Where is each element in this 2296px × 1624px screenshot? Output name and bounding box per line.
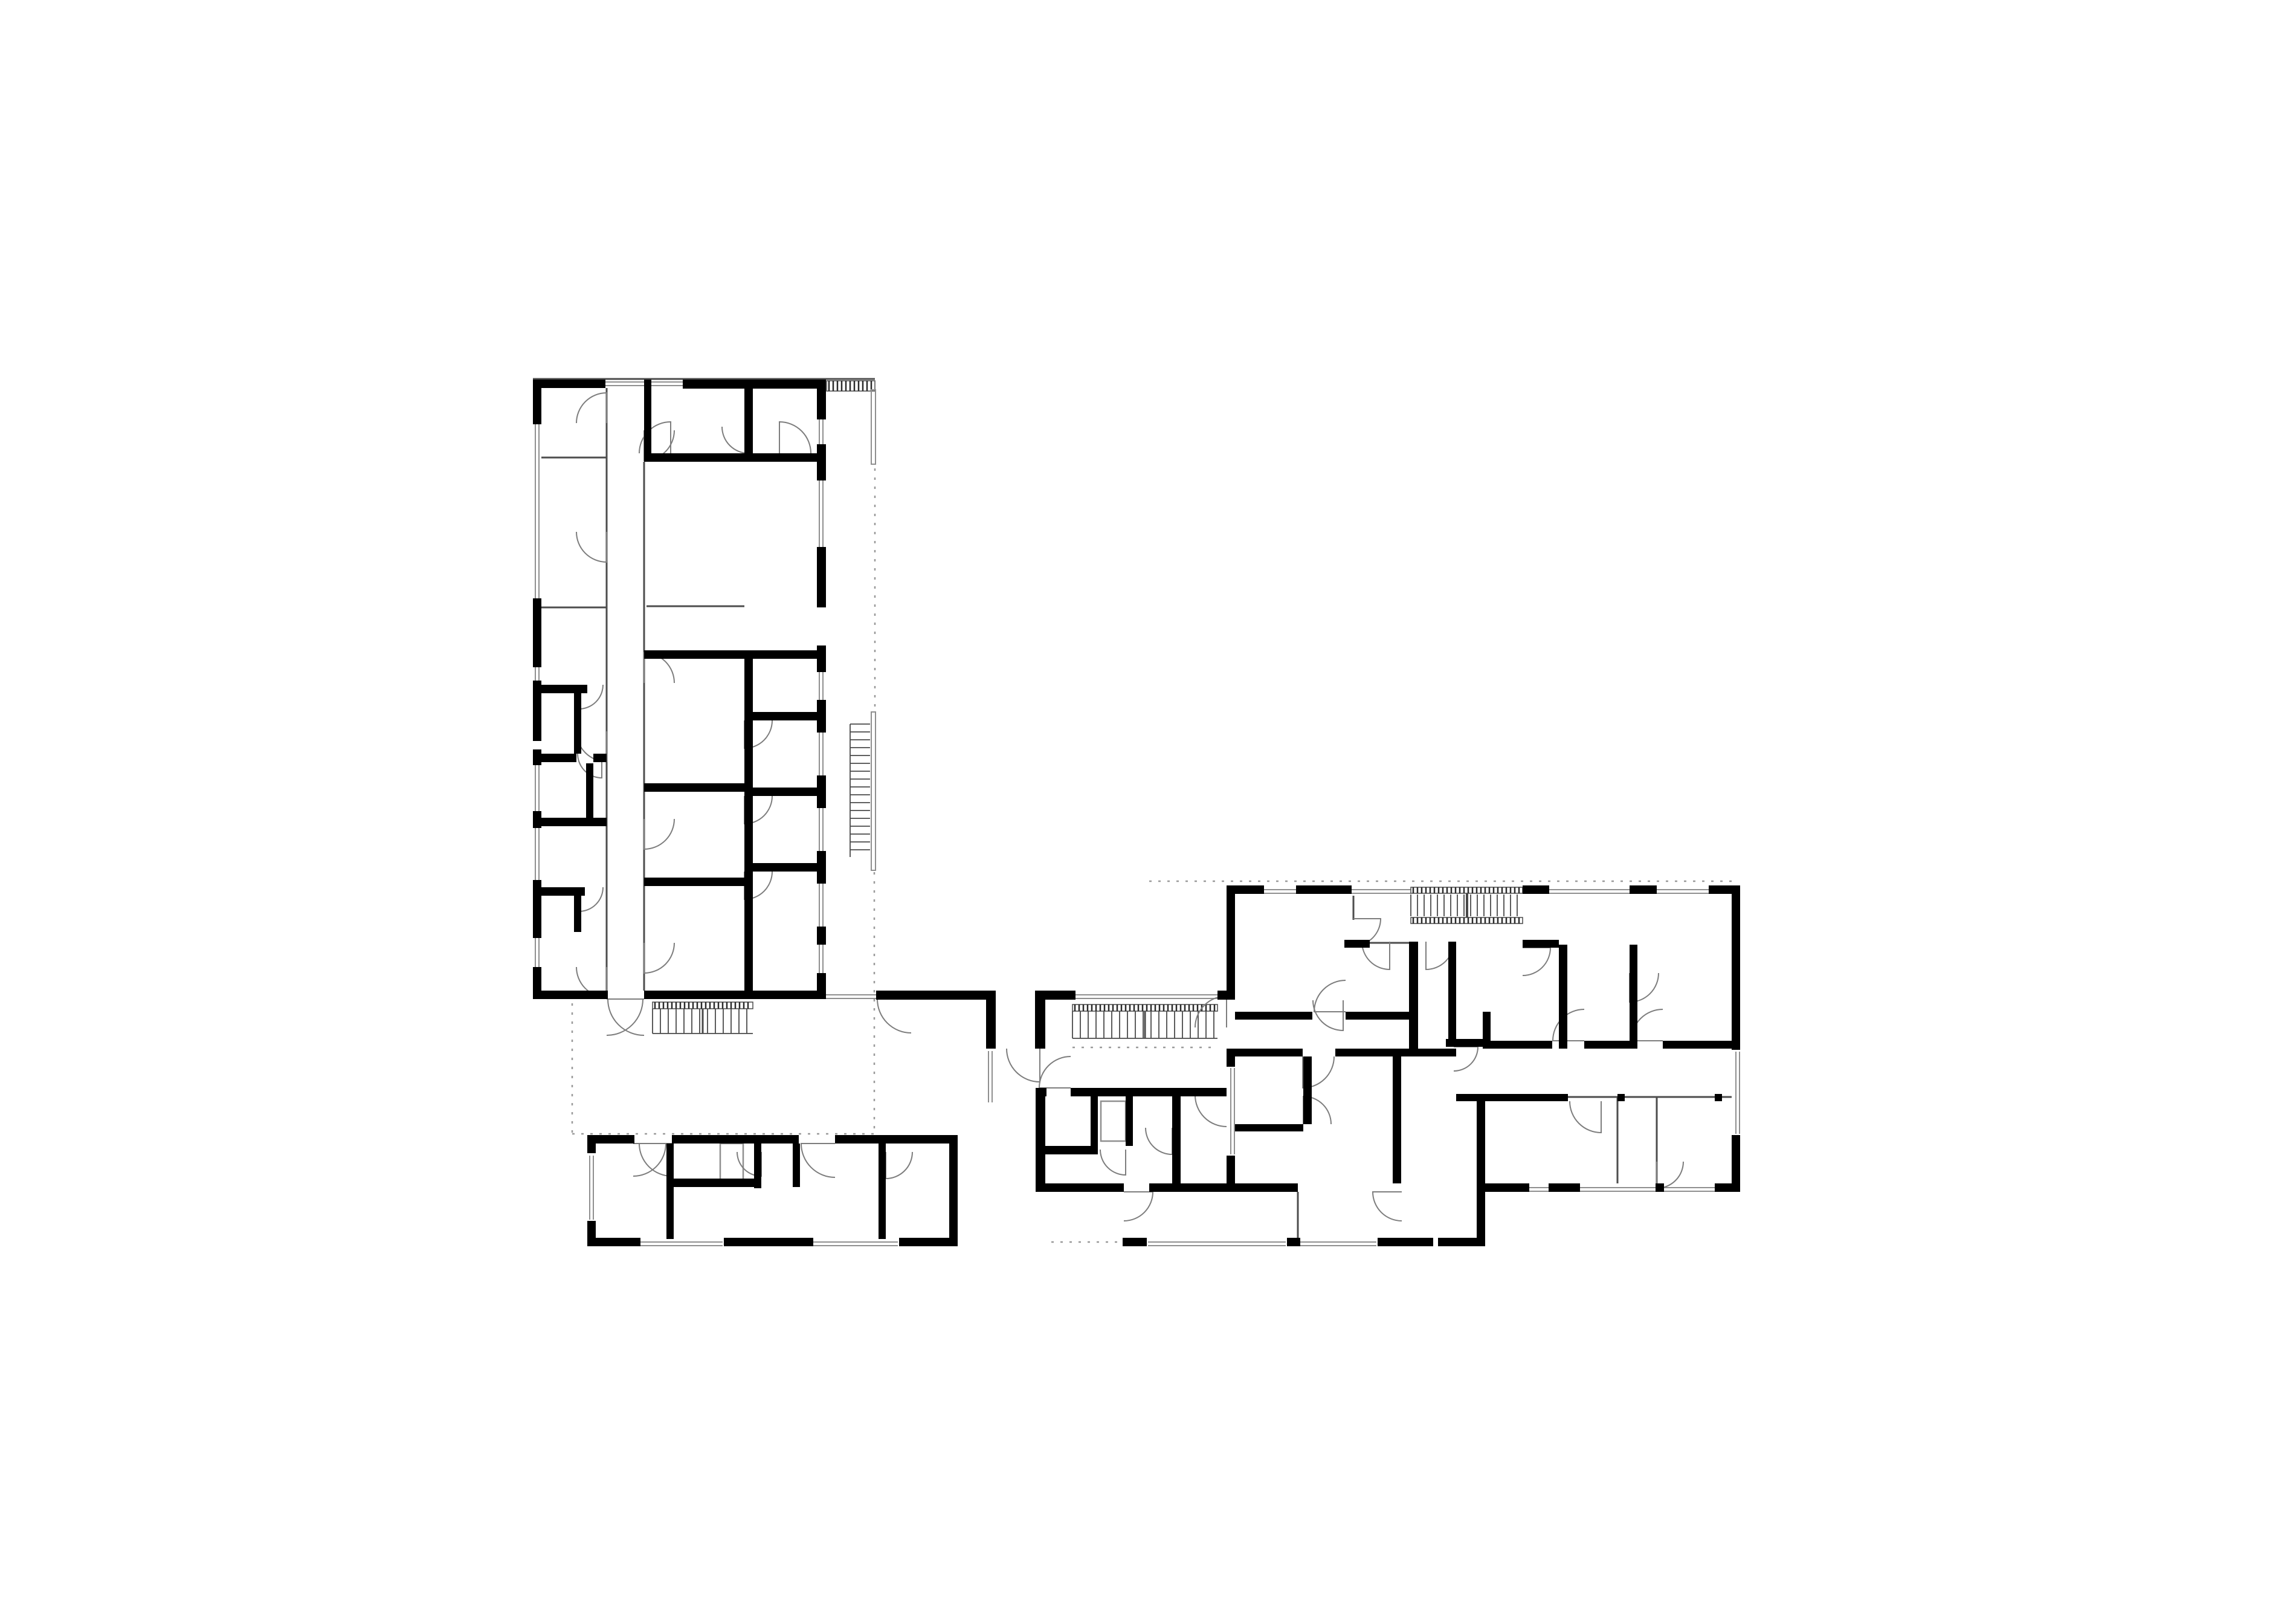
- wall-segment: [1523, 940, 1559, 948]
- wall-segment: [876, 991, 911, 1000]
- door-swing: [779, 422, 811, 453]
- wall-segment: [1523, 885, 1549, 894]
- wall-segment: [1732, 885, 1740, 1050]
- wall-segment: [1584, 1041, 1631, 1049]
- wall-segment: [593, 754, 607, 762]
- door-swing: [801, 1144, 835, 1177]
- door-swing: [886, 1152, 912, 1179]
- door-swing: [1100, 1150, 1126, 1175]
- wall-segment: [817, 645, 826, 672]
- wall-segment: [541, 754, 576, 762]
- elevators-layer: [720, 390, 1126, 1183]
- wall-segment: [753, 788, 817, 796]
- wall-segment: [1393, 1056, 1401, 1183]
- door-swing: [1553, 1009, 1584, 1041]
- wall-segment: [744, 388, 753, 453]
- thick-walls-layer: [533, 380, 1740, 1246]
- wall-segment: [744, 659, 753, 991]
- wall-segment: [1549, 1183, 1580, 1192]
- wall-segment: [574, 693, 581, 754]
- canopy-post: [871, 712, 876, 870]
- wall-segment: [1227, 885, 1235, 992]
- wall-segment: [644, 878, 744, 886]
- wall-segment: [644, 991, 825, 999]
- wall-segment: [724, 1238, 813, 1246]
- wall-segment: [753, 863, 817, 872]
- wall-segment: [1446, 1039, 1491, 1047]
- floor-plan-page: [0, 0, 2296, 1624]
- wall-segment: [644, 650, 817, 659]
- wall-segment: [644, 783, 744, 792]
- wall-segment: [911, 991, 995, 1000]
- wall-segment: [541, 685, 587, 693]
- wall-segment: [541, 887, 585, 896]
- wall-segment: [835, 1135, 949, 1144]
- wall-segment: [753, 712, 817, 720]
- wall-segment: [1732, 1135, 1740, 1192]
- wall-segment: [533, 880, 541, 938]
- door-swing: [1195, 1095, 1227, 1127]
- wall-segment: [949, 1135, 958, 1246]
- wall-segment: [793, 1144, 800, 1187]
- wall-segment: [1715, 1183, 1740, 1192]
- wall-segment: [644, 453, 817, 462]
- wall-segment: [1559, 945, 1567, 1049]
- door-swing: [644, 819, 674, 849]
- wall-segment: [666, 1144, 674, 1239]
- wall-segment: [1227, 1183, 1298, 1192]
- wall-segment: [1035, 991, 1075, 1000]
- wall-segment: [1344, 940, 1370, 948]
- wall-segment: [817, 851, 826, 884]
- stair-rail-band: [1072, 1004, 1217, 1011]
- door-swing: [1314, 980, 1346, 1012]
- door-swing: [1454, 1047, 1478, 1071]
- door-swing: [576, 532, 607, 562]
- wall-segment: [1036, 1183, 1124, 1192]
- wall-segment: [1149, 1183, 1235, 1192]
- wall-segment: [1235, 1012, 1312, 1020]
- wall-segment: [1409, 942, 1418, 1049]
- wall-segment: [586, 763, 593, 818]
- wall-segment: [817, 380, 826, 419]
- door-swing: [644, 943, 674, 973]
- wall-segment: [533, 598, 541, 667]
- wall-segment: [1235, 1049, 1303, 1056]
- wall-segment: [1663, 1041, 1732, 1049]
- wall-segment: [533, 380, 605, 388]
- wall-segment: [533, 380, 541, 424]
- wall-segment: [533, 991, 608, 999]
- wall-segment: [899, 1238, 958, 1246]
- wall-segment: [533, 811, 541, 828]
- wall-segment: [1346, 1012, 1409, 1020]
- wall-segment: [1617, 1094, 1625, 1101]
- canopy-post: [871, 390, 876, 464]
- door-swing: [1007, 1049, 1040, 1082]
- wall-segment: [817, 700, 826, 733]
- wall-segment: [986, 991, 996, 1049]
- wall-segment: [1217, 991, 1235, 1000]
- wall-segment: [817, 775, 826, 808]
- stairs-layer: [653, 381, 1523, 1038]
- floor-plan-canvas: [0, 0, 2296, 1624]
- wall-segment: [817, 927, 826, 945]
- wall-segment: [879, 1144, 886, 1239]
- wall-segment: [1630, 885, 1657, 894]
- wall-segment: [1378, 1238, 1433, 1246]
- wall-segment: [1485, 1183, 1529, 1192]
- door-swing: [1523, 948, 1550, 975]
- wall-segment: [1448, 942, 1456, 1047]
- wall-segment: [574, 896, 581, 932]
- wall-segment: [1036, 1146, 1098, 1154]
- door-swing: [576, 393, 607, 423]
- door-swing: [1195, 996, 1227, 1027]
- elevator-shaft: [1101, 1101, 1126, 1141]
- door-swing: [1570, 1101, 1601, 1133]
- wall-segment: [1491, 1041, 1552, 1049]
- wall-segment: [1656, 1183, 1664, 1192]
- wall-segment: [666, 1179, 761, 1187]
- wall-segment: [1172, 1096, 1181, 1183]
- wall-segment: [541, 818, 607, 826]
- wall-segment: [1036, 1088, 1045, 1183]
- wall-segment: [817, 444, 826, 480]
- wall-segment: [683, 380, 826, 389]
- wall-segment: [1227, 1049, 1235, 1067]
- wall-segment: [587, 1238, 640, 1246]
- wall-segment: [1477, 1094, 1485, 1246]
- wall-segment: [1123, 1238, 1147, 1246]
- wall-segment: [533, 681, 541, 741]
- wall-segment: [1335, 1049, 1456, 1056]
- door-swing: [633, 1144, 666, 1176]
- door-swing: [1373, 1192, 1402, 1221]
- door-swing: [1124, 1192, 1153, 1221]
- wall-segment: [1091, 1096, 1098, 1146]
- wall-segment: [1303, 1056, 1312, 1124]
- door-swing: [1146, 1128, 1172, 1154]
- wall-segment: [1235, 1124, 1303, 1131]
- wall-segment: [1630, 945, 1637, 1049]
- wall-segment: [1071, 1088, 1227, 1096]
- windows-layer: [535, 382, 1740, 1246]
- wall-segment: [1287, 1238, 1300, 1246]
- wall-segment: [1456, 1094, 1568, 1101]
- wall-segment: [817, 547, 826, 607]
- door-swing: [877, 999, 911, 1033]
- wall-segment: [533, 749, 541, 765]
- wall-segment: [587, 1135, 596, 1153]
- wall-segment: [644, 380, 651, 462]
- door-swing: [1039, 1056, 1071, 1088]
- wall-segment: [1296, 885, 1352, 894]
- wall-segment: [672, 1135, 799, 1144]
- wall-segment: [1126, 1096, 1133, 1146]
- door-swing: [1313, 1000, 1343, 1030]
- wall-segment: [817, 973, 826, 999]
- wall-segment: [1715, 1094, 1722, 1101]
